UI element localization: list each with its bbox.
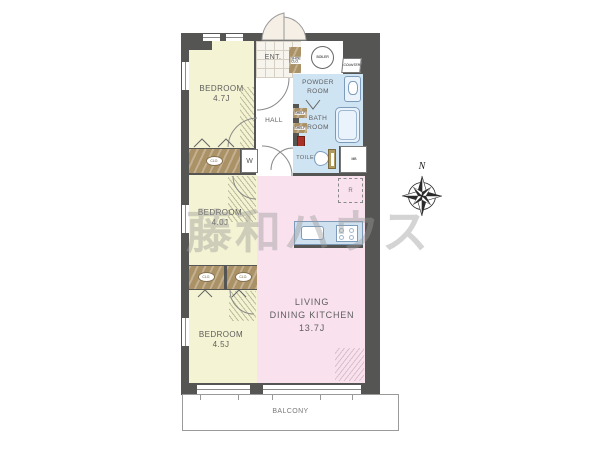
ldk-line2: DINING KITCHEN: [258, 309, 366, 322]
washing-machine: W: [241, 149, 258, 173]
bathtub-inner: [338, 110, 357, 140]
room-ldk: [257, 176, 365, 383]
bedroom2-name: BEDROOM: [189, 208, 251, 218]
meter-box-label: MB: [351, 158, 356, 162]
shelf-lower: SHELF: [293, 123, 307, 133]
toilet-tank-lid: [331, 153, 334, 166]
refrigerator-space: R: [338, 178, 363, 203]
balcony-tick: [272, 395, 273, 400]
balcony-tick: [238, 395, 239, 400]
ldk-size: 13.7J: [258, 322, 366, 335]
toilet-tank: [328, 149, 336, 169]
balcony-window-ldk: [263, 385, 361, 394]
bedroom1-name: BEDROOM: [189, 84, 254, 94]
closet-mid-left-label: CLO.: [203, 275, 211, 279]
compass-north-label: N: [418, 161, 427, 172]
window: [203, 34, 220, 41]
kitchen-counter-edge: [294, 245, 363, 248]
shelf-lower-label: SHELF: [295, 126, 306, 130]
window: [182, 62, 189, 90]
closet-top-label: CLO.: [211, 159, 219, 163]
meter-box: MB: [340, 146, 367, 173]
closet-mid-left-pill: CLO.: [198, 272, 215, 282]
room-hall: [256, 78, 293, 176]
closet-mid-right: CLO.: [227, 266, 260, 289]
door-swing-hatch: [229, 291, 256, 321]
wall-notch: [189, 41, 212, 50]
hall-label: HALL: [258, 117, 290, 125]
stove-burner: [339, 228, 344, 233]
closet-top-pill: CLO.: [206, 156, 223, 166]
balcony-tick: [200, 395, 201, 400]
kitchen-counter: [294, 221, 363, 245]
closet-top: CLO.: [189, 149, 240, 173]
bathtub: [335, 107, 360, 143]
window: [182, 318, 189, 346]
balcony-window-bedroom3: [197, 385, 250, 394]
floor-plan: BEDROOM 4.7J ENT. SHOES CLO. BOILER COUN…: [0, 0, 600, 450]
ldk-line1: LIVING: [258, 296, 366, 309]
bedroom2-size: 4.0J: [189, 218, 251, 228]
boiler-unit: BOILER: [311, 46, 334, 69]
closet-mid-right-pill: CLO.: [235, 272, 252, 282]
kitchen-sink: [301, 226, 324, 240]
bedroom1-size: 4.7J: [189, 94, 254, 104]
washing-machine-label: W: [246, 158, 253, 165]
balcony-label: BALCONY: [182, 408, 399, 417]
stove-burner: [339, 235, 344, 240]
powder-room-line2: ROOM: [294, 87, 342, 96]
shelf-upper-label: SHELF: [295, 111, 306, 115]
counter: COUNTER: [341, 58, 362, 73]
balcony-tick: [320, 395, 321, 400]
bedroom3-size: 4.5J: [189, 340, 253, 350]
closet-mid-right-label: CLO.: [240, 275, 248, 279]
washbasin: [344, 76, 361, 102]
balcony-tick: [352, 395, 353, 400]
stove-burner: [349, 228, 354, 233]
stove-burner: [349, 235, 354, 240]
window: [226, 34, 243, 41]
washbasin-bowl: [348, 81, 358, 95]
closet-mid-left: CLO.: [189, 266, 224, 289]
shelf-upper: SHELF: [293, 108, 307, 118]
compass-rose: N: [396, 158, 448, 220]
entrance-label: ENT.: [258, 54, 288, 63]
window-hatch: [335, 348, 364, 381]
counter-label: COUNTER: [343, 64, 360, 68]
refrigerator-label: R: [348, 188, 352, 194]
window: [182, 205, 189, 233]
bedroom3-name: BEDROOM: [189, 330, 253, 340]
boiler-label: BOILER: [316, 56, 328, 60]
kitchen-stove: [336, 225, 358, 242]
powder-room-line1: POWDER: [294, 78, 342, 87]
